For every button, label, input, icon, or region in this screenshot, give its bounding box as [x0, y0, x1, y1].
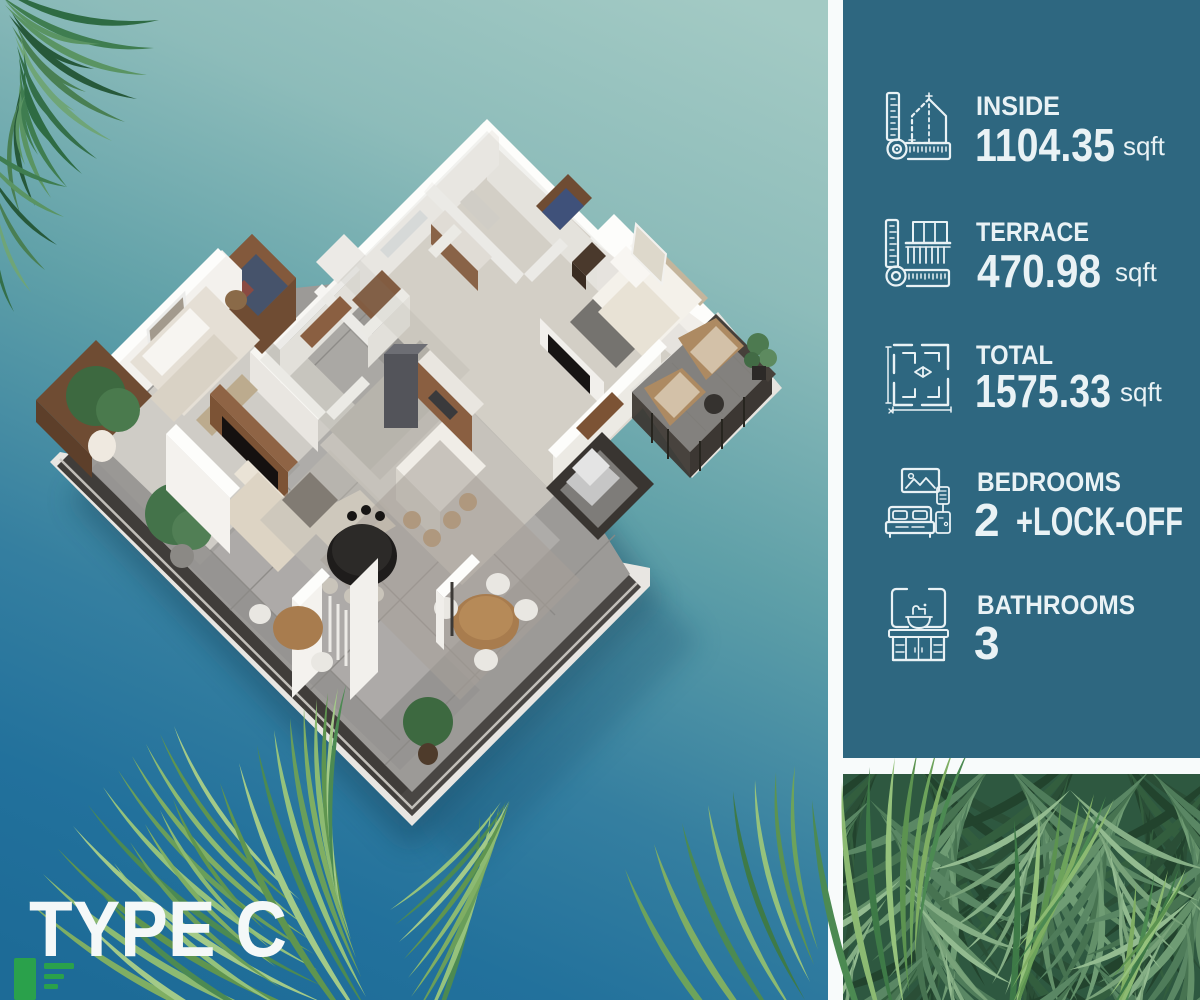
svg-text:2: 2 [974, 494, 1000, 546]
svg-text:sqft: sqft [1120, 377, 1163, 407]
svg-text:3: 3 [974, 617, 1000, 669]
svg-text:BATHROOMS: BATHROOMS [977, 590, 1135, 620]
svg-text:BEDROOMS: BEDROOMS [977, 467, 1121, 497]
svg-text:TERRACE: TERRACE [976, 217, 1089, 247]
svg-text:+LOCK-OFF: +LOCK-OFF [1016, 500, 1183, 544]
svg-text:TYPE C: TYPE C [29, 884, 287, 973]
svg-text:INSIDE: INSIDE [976, 91, 1060, 121]
svg-text:sqft: sqft [1123, 131, 1166, 161]
svg-text:1575.33: 1575.33 [975, 365, 1111, 417]
svg-text:1104.35: 1104.35 [975, 119, 1115, 171]
svg-text:sqft: sqft [1115, 257, 1158, 287]
svg-text:470.98: 470.98 [977, 245, 1101, 297]
